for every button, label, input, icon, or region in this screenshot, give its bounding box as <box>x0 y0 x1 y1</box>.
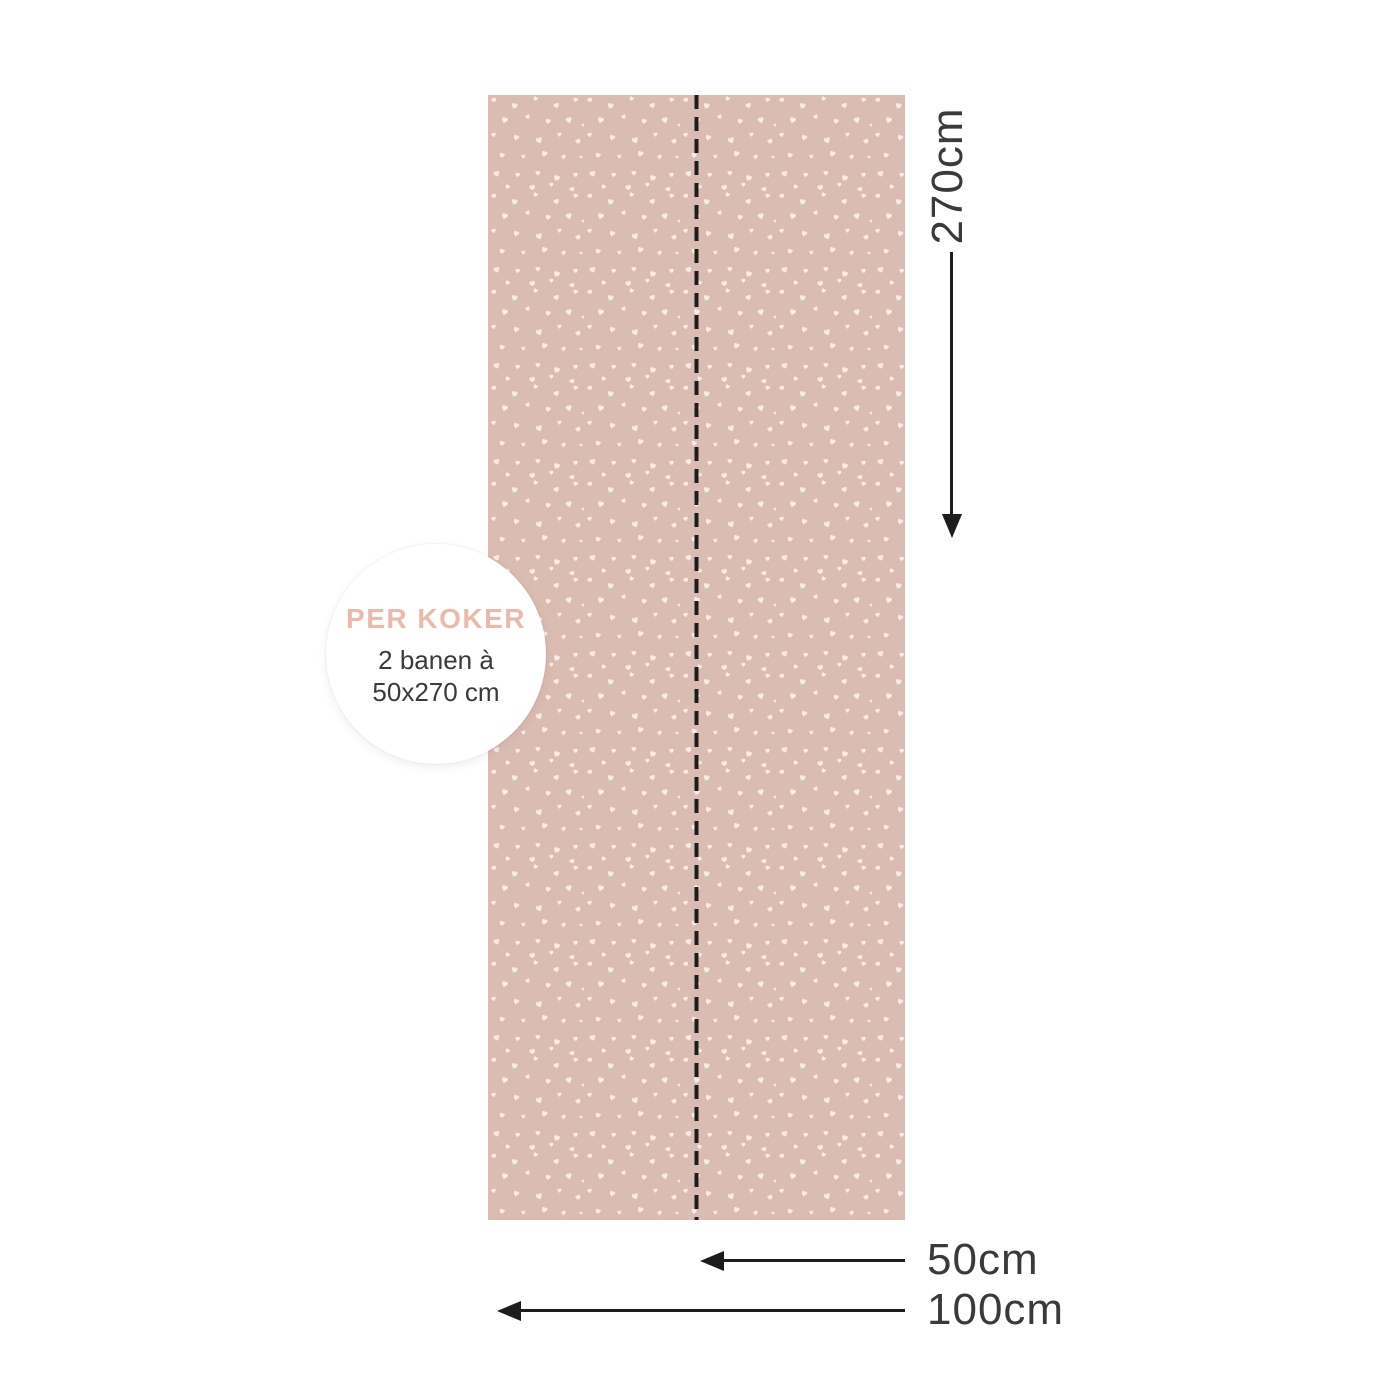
down-arrow-icon <box>942 514 962 538</box>
wallpaper-dimension-diagram: PER KOKER 2 banen à 50x270 cm 270cm 50cm… <box>0 0 1400 1400</box>
full-width-dimension-label: 100cm <box>927 1288 1064 1332</box>
height-arrow-line <box>950 252 953 516</box>
per-koker-badge: PER KOKER 2 banen à 50x270 cm <box>326 544 546 764</box>
half-width-dimension-label: 50cm <box>927 1238 1039 1282</box>
height-dimension-label: 270cm <box>926 107 970 244</box>
badge-title: PER KOKER <box>346 603 526 635</box>
half-width-arrow-line <box>714 1259 905 1262</box>
badge-size-text: 50x270 cm <box>372 677 499 709</box>
badge-strips-text: 2 banen à <box>378 645 494 677</box>
full-width-arrow-line <box>511 1309 905 1312</box>
wallpaper-panel <box>488 95 905 1220</box>
